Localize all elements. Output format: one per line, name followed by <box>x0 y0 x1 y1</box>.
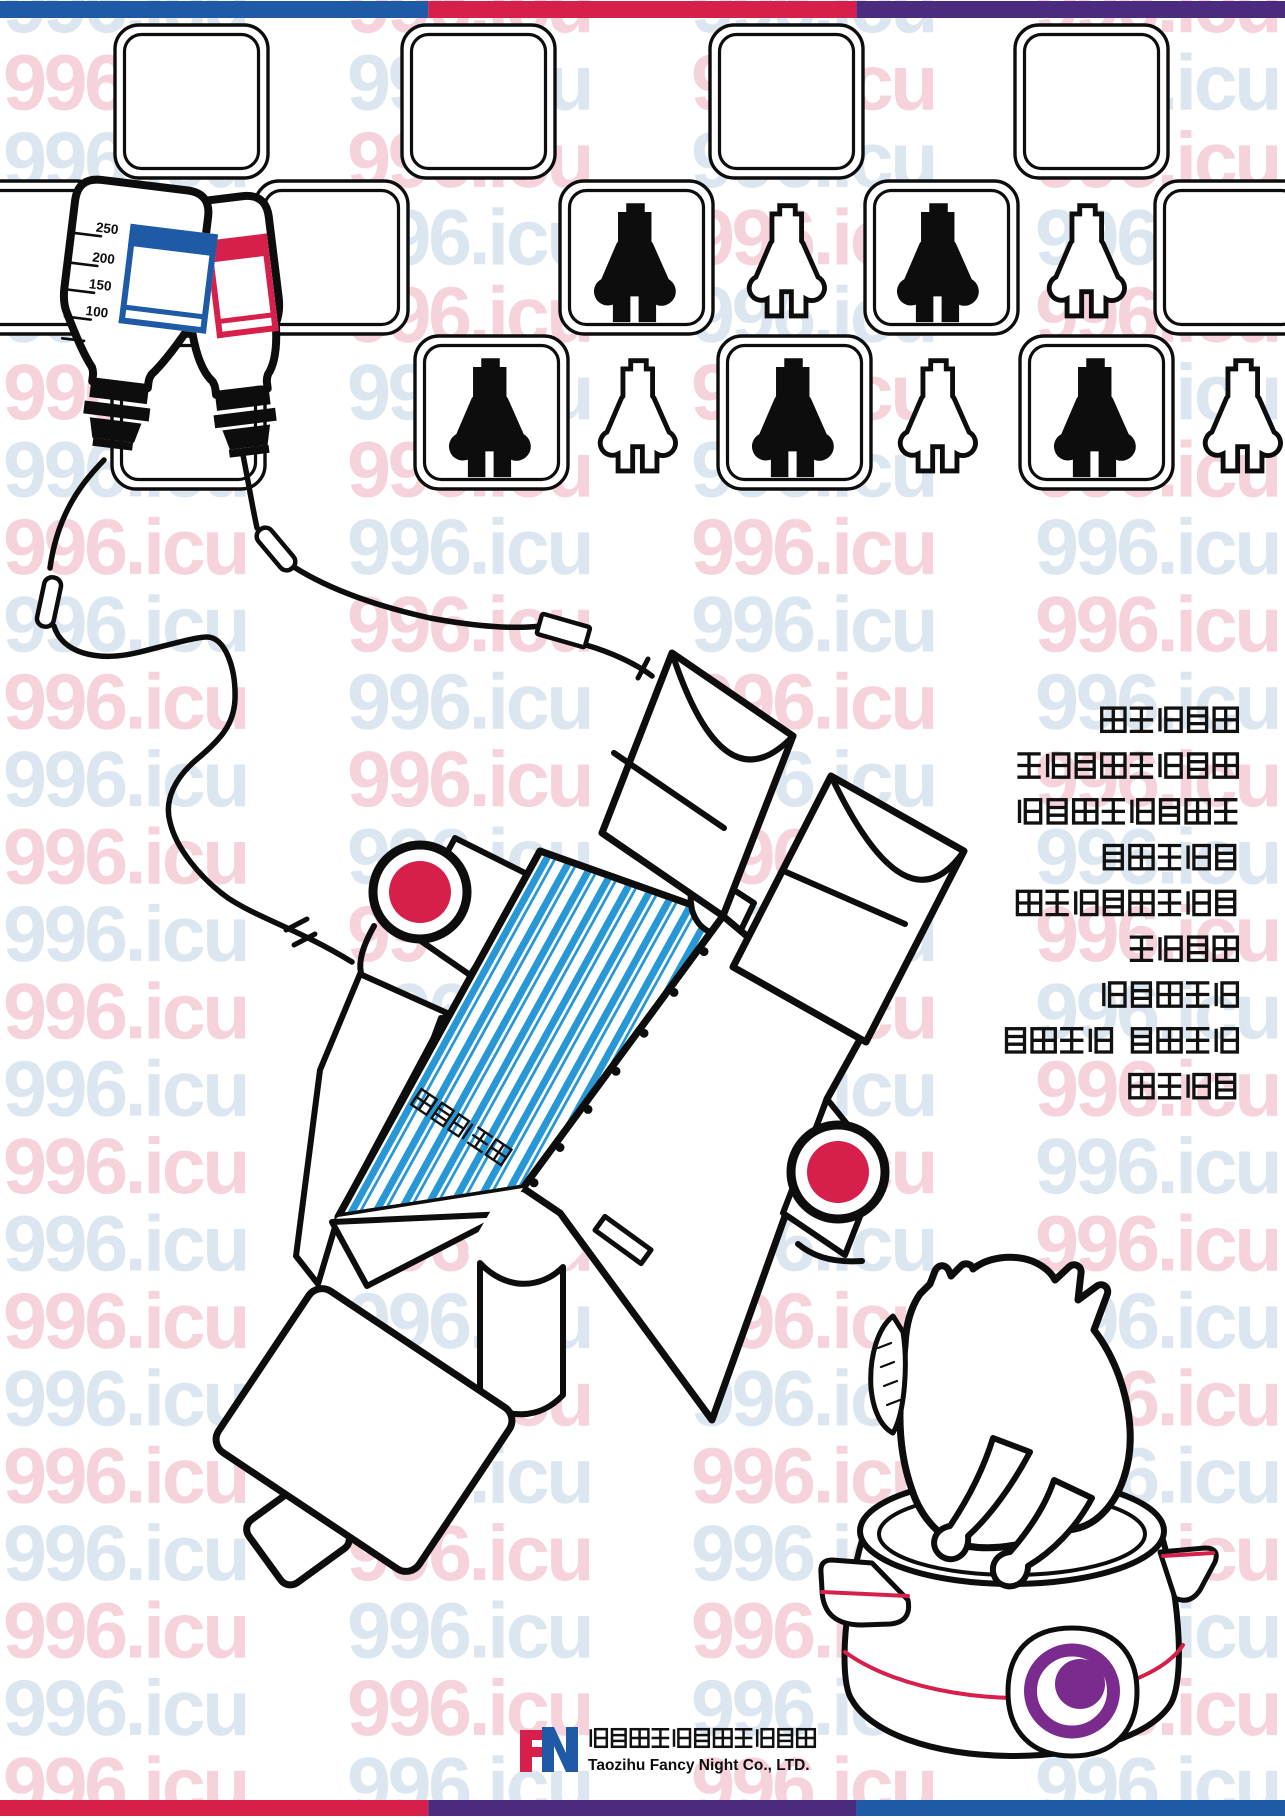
svg-text:150: 150 <box>88 276 112 294</box>
svg-text:Taozihu Fancy Night Co., LTD.: Taozihu Fancy Night Co., LTD. <box>588 1757 810 1774</box>
svg-text:100: 100 <box>85 303 109 321</box>
svg-text:250: 250 <box>95 220 119 238</box>
svg-text:200: 200 <box>91 249 115 267</box>
